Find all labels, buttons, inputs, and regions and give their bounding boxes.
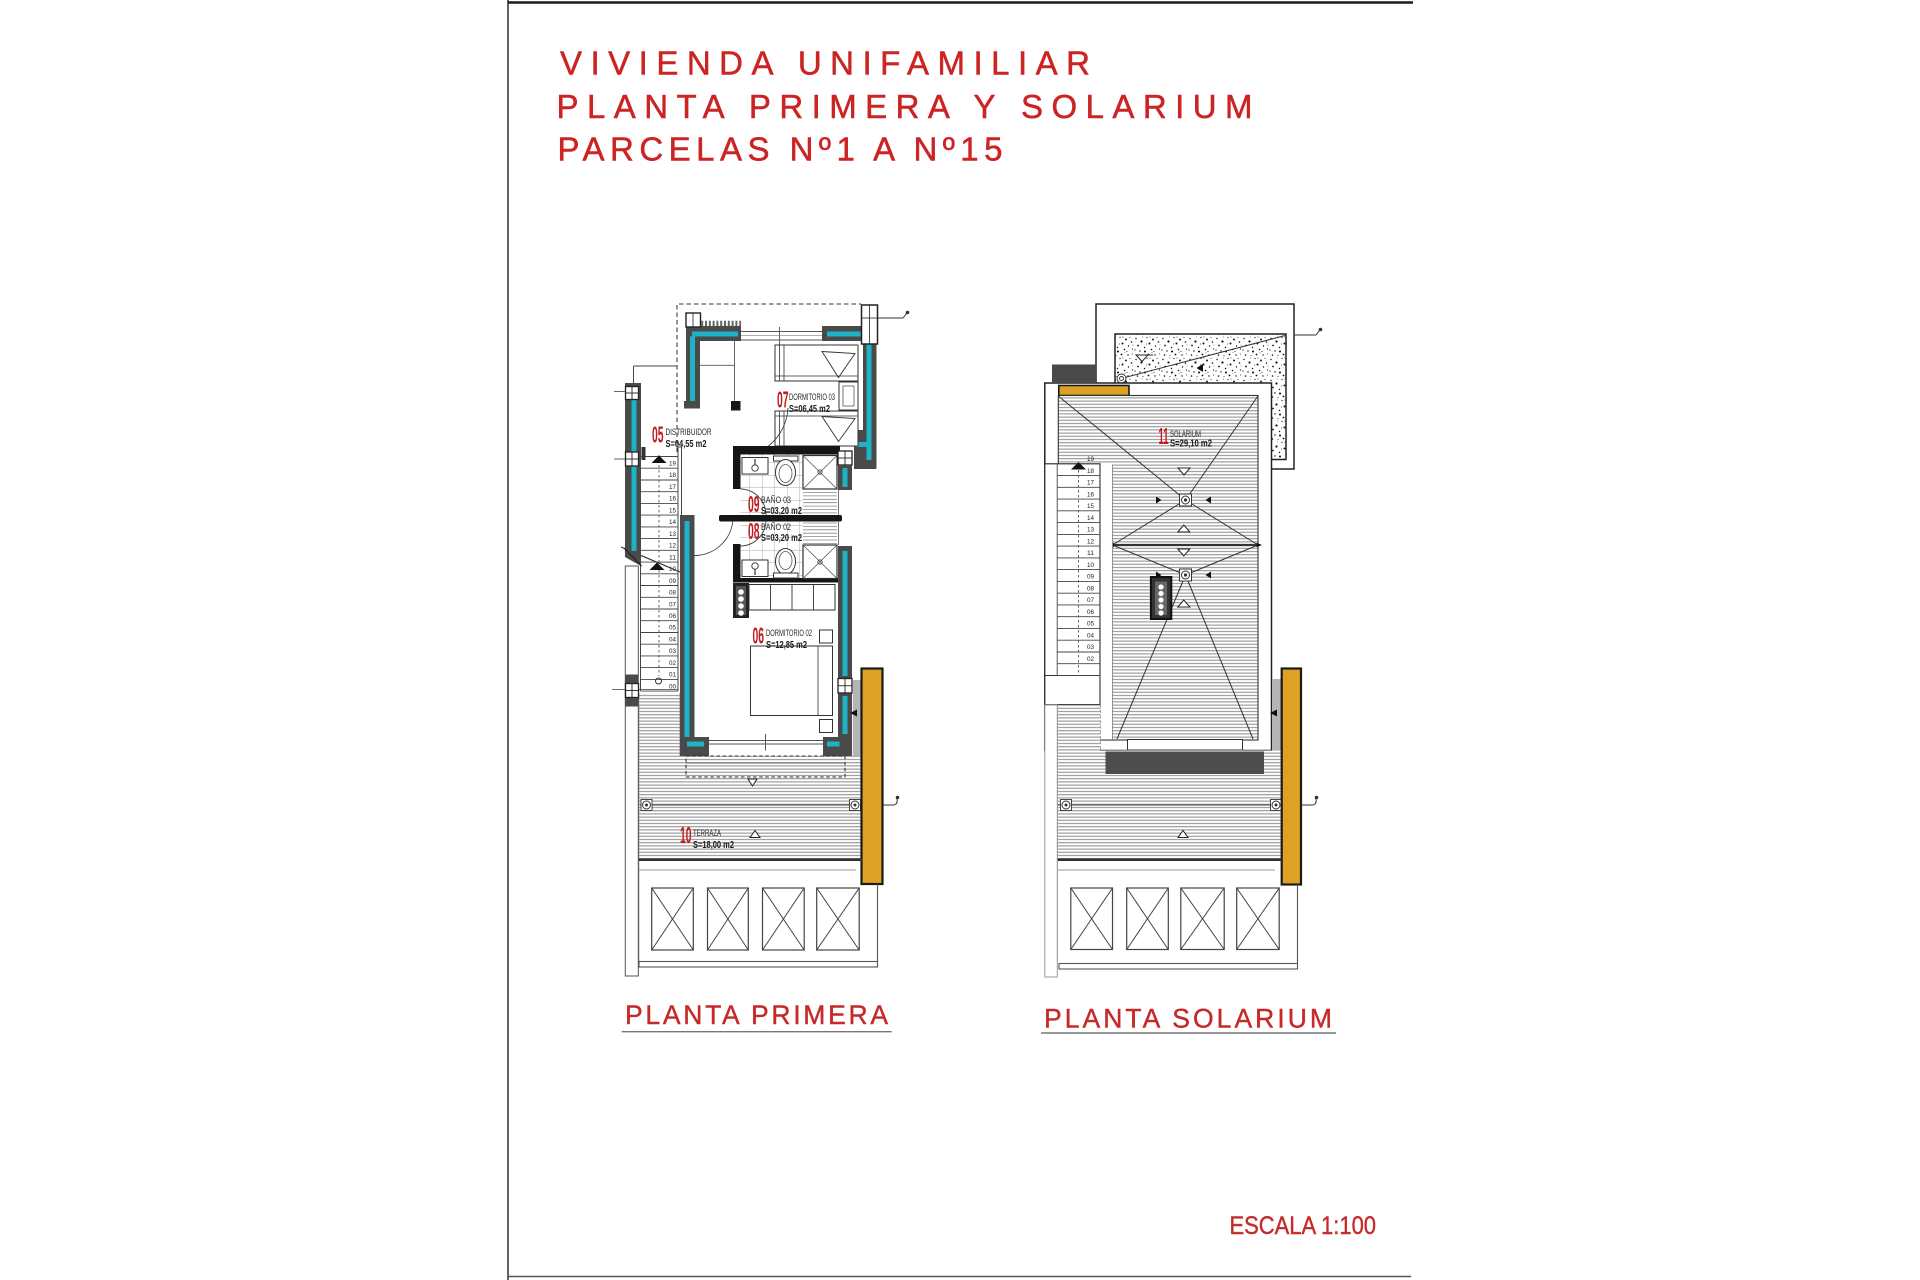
- svg-text:15: 15: [669, 507, 676, 514]
- svg-text:13: 13: [669, 531, 676, 538]
- svg-text:ESCALA 1:100: ESCALA 1:100: [1230, 1212, 1377, 1240]
- svg-text:S=06,45 m2: S=06,45 m2: [789, 403, 830, 415]
- svg-text:17: 17: [1087, 480, 1094, 487]
- svg-text:07: 07: [1087, 597, 1094, 604]
- svg-text:S=04,55 m2: S=04,55 m2: [666, 438, 707, 450]
- svg-text:09: 09: [748, 491, 760, 517]
- svg-text:08: 08: [748, 518, 760, 544]
- svg-text:S=18,00 m2: S=18,00 m2: [693, 839, 734, 851]
- svg-text:18: 18: [1087, 468, 1094, 475]
- svg-text:17: 17: [669, 484, 676, 491]
- svg-text:14: 14: [1087, 515, 1094, 522]
- svg-text:BAÑO 03: BAÑO 03: [761, 495, 791, 505]
- svg-text:06: 06: [1087, 609, 1094, 616]
- svg-text:08: 08: [1087, 585, 1094, 592]
- svg-text:19: 19: [1087, 456, 1094, 463]
- svg-text:DORMITORIO 02: DORMITORIO 02: [766, 628, 812, 638]
- svg-text:11: 11: [1159, 423, 1169, 449]
- svg-text:04: 04: [669, 637, 676, 644]
- svg-text:18: 18: [669, 472, 676, 479]
- svg-text:16: 16: [669, 496, 676, 503]
- svg-text:02: 02: [1087, 656, 1094, 663]
- svg-text:S=29,10 m2: S=29,10 m2: [1170, 438, 1212, 450]
- svg-text:TERRAZA: TERRAZA: [693, 828, 721, 838]
- svg-text:09: 09: [669, 578, 676, 585]
- svg-text:07: 07: [777, 387, 789, 413]
- svg-text:13: 13: [1087, 527, 1094, 534]
- svg-text:12: 12: [1087, 538, 1094, 545]
- svg-text:04: 04: [1087, 632, 1094, 639]
- svg-text:06: 06: [753, 623, 765, 649]
- svg-text:DISTRIBUIDOR: DISTRIBUIDOR: [666, 427, 712, 437]
- svg-text:03: 03: [1087, 644, 1094, 651]
- svg-text:05: 05: [1087, 621, 1094, 628]
- svg-text:S=12,85 m2: S=12,85 m2: [766, 639, 807, 651]
- svg-text:03: 03: [669, 648, 676, 655]
- svg-text:11: 11: [669, 554, 677, 561]
- svg-text:09: 09: [1087, 574, 1094, 581]
- svg-text:16: 16: [1087, 491, 1094, 498]
- svg-text:07: 07: [669, 601, 676, 608]
- svg-text:10: 10: [680, 822, 692, 848]
- svg-text:PLANTA PRIMERA Y SOLARIUM: PLANTA PRIMERA Y SOLARIUM: [557, 88, 1253, 125]
- svg-text:PLANTA SOLARIUM: PLANTA SOLARIUM: [1044, 1004, 1332, 1034]
- svg-text:PLANTA PRIMERA: PLANTA PRIMERA: [625, 1000, 888, 1030]
- svg-text:02: 02: [669, 660, 676, 667]
- svg-text:S=03,20 m2: S=03,20 m2: [761, 505, 802, 517]
- svg-text:DORMITORIO 03: DORMITORIO 03: [789, 392, 835, 402]
- svg-text:14: 14: [669, 519, 676, 526]
- svg-text:05: 05: [669, 625, 676, 632]
- svg-text:S=03,20 m2: S=03,20 m2: [761, 532, 802, 544]
- svg-text:PARCELAS Nº1 A Nº15: PARCELAS Nº1 A Nº15: [558, 131, 1003, 168]
- svg-text:06: 06: [669, 613, 676, 620]
- svg-text:08: 08: [669, 590, 676, 597]
- svg-text:12: 12: [669, 543, 676, 550]
- svg-text:10: 10: [1087, 562, 1094, 569]
- svg-text:15: 15: [1087, 503, 1094, 510]
- svg-text:11: 11: [1087, 550, 1095, 557]
- svg-text:05: 05: [652, 422, 664, 448]
- svg-text:19: 19: [669, 461, 676, 468]
- svg-text:BAÑO 02: BAÑO 02: [761, 522, 791, 532]
- svg-text:01: 01: [669, 672, 676, 679]
